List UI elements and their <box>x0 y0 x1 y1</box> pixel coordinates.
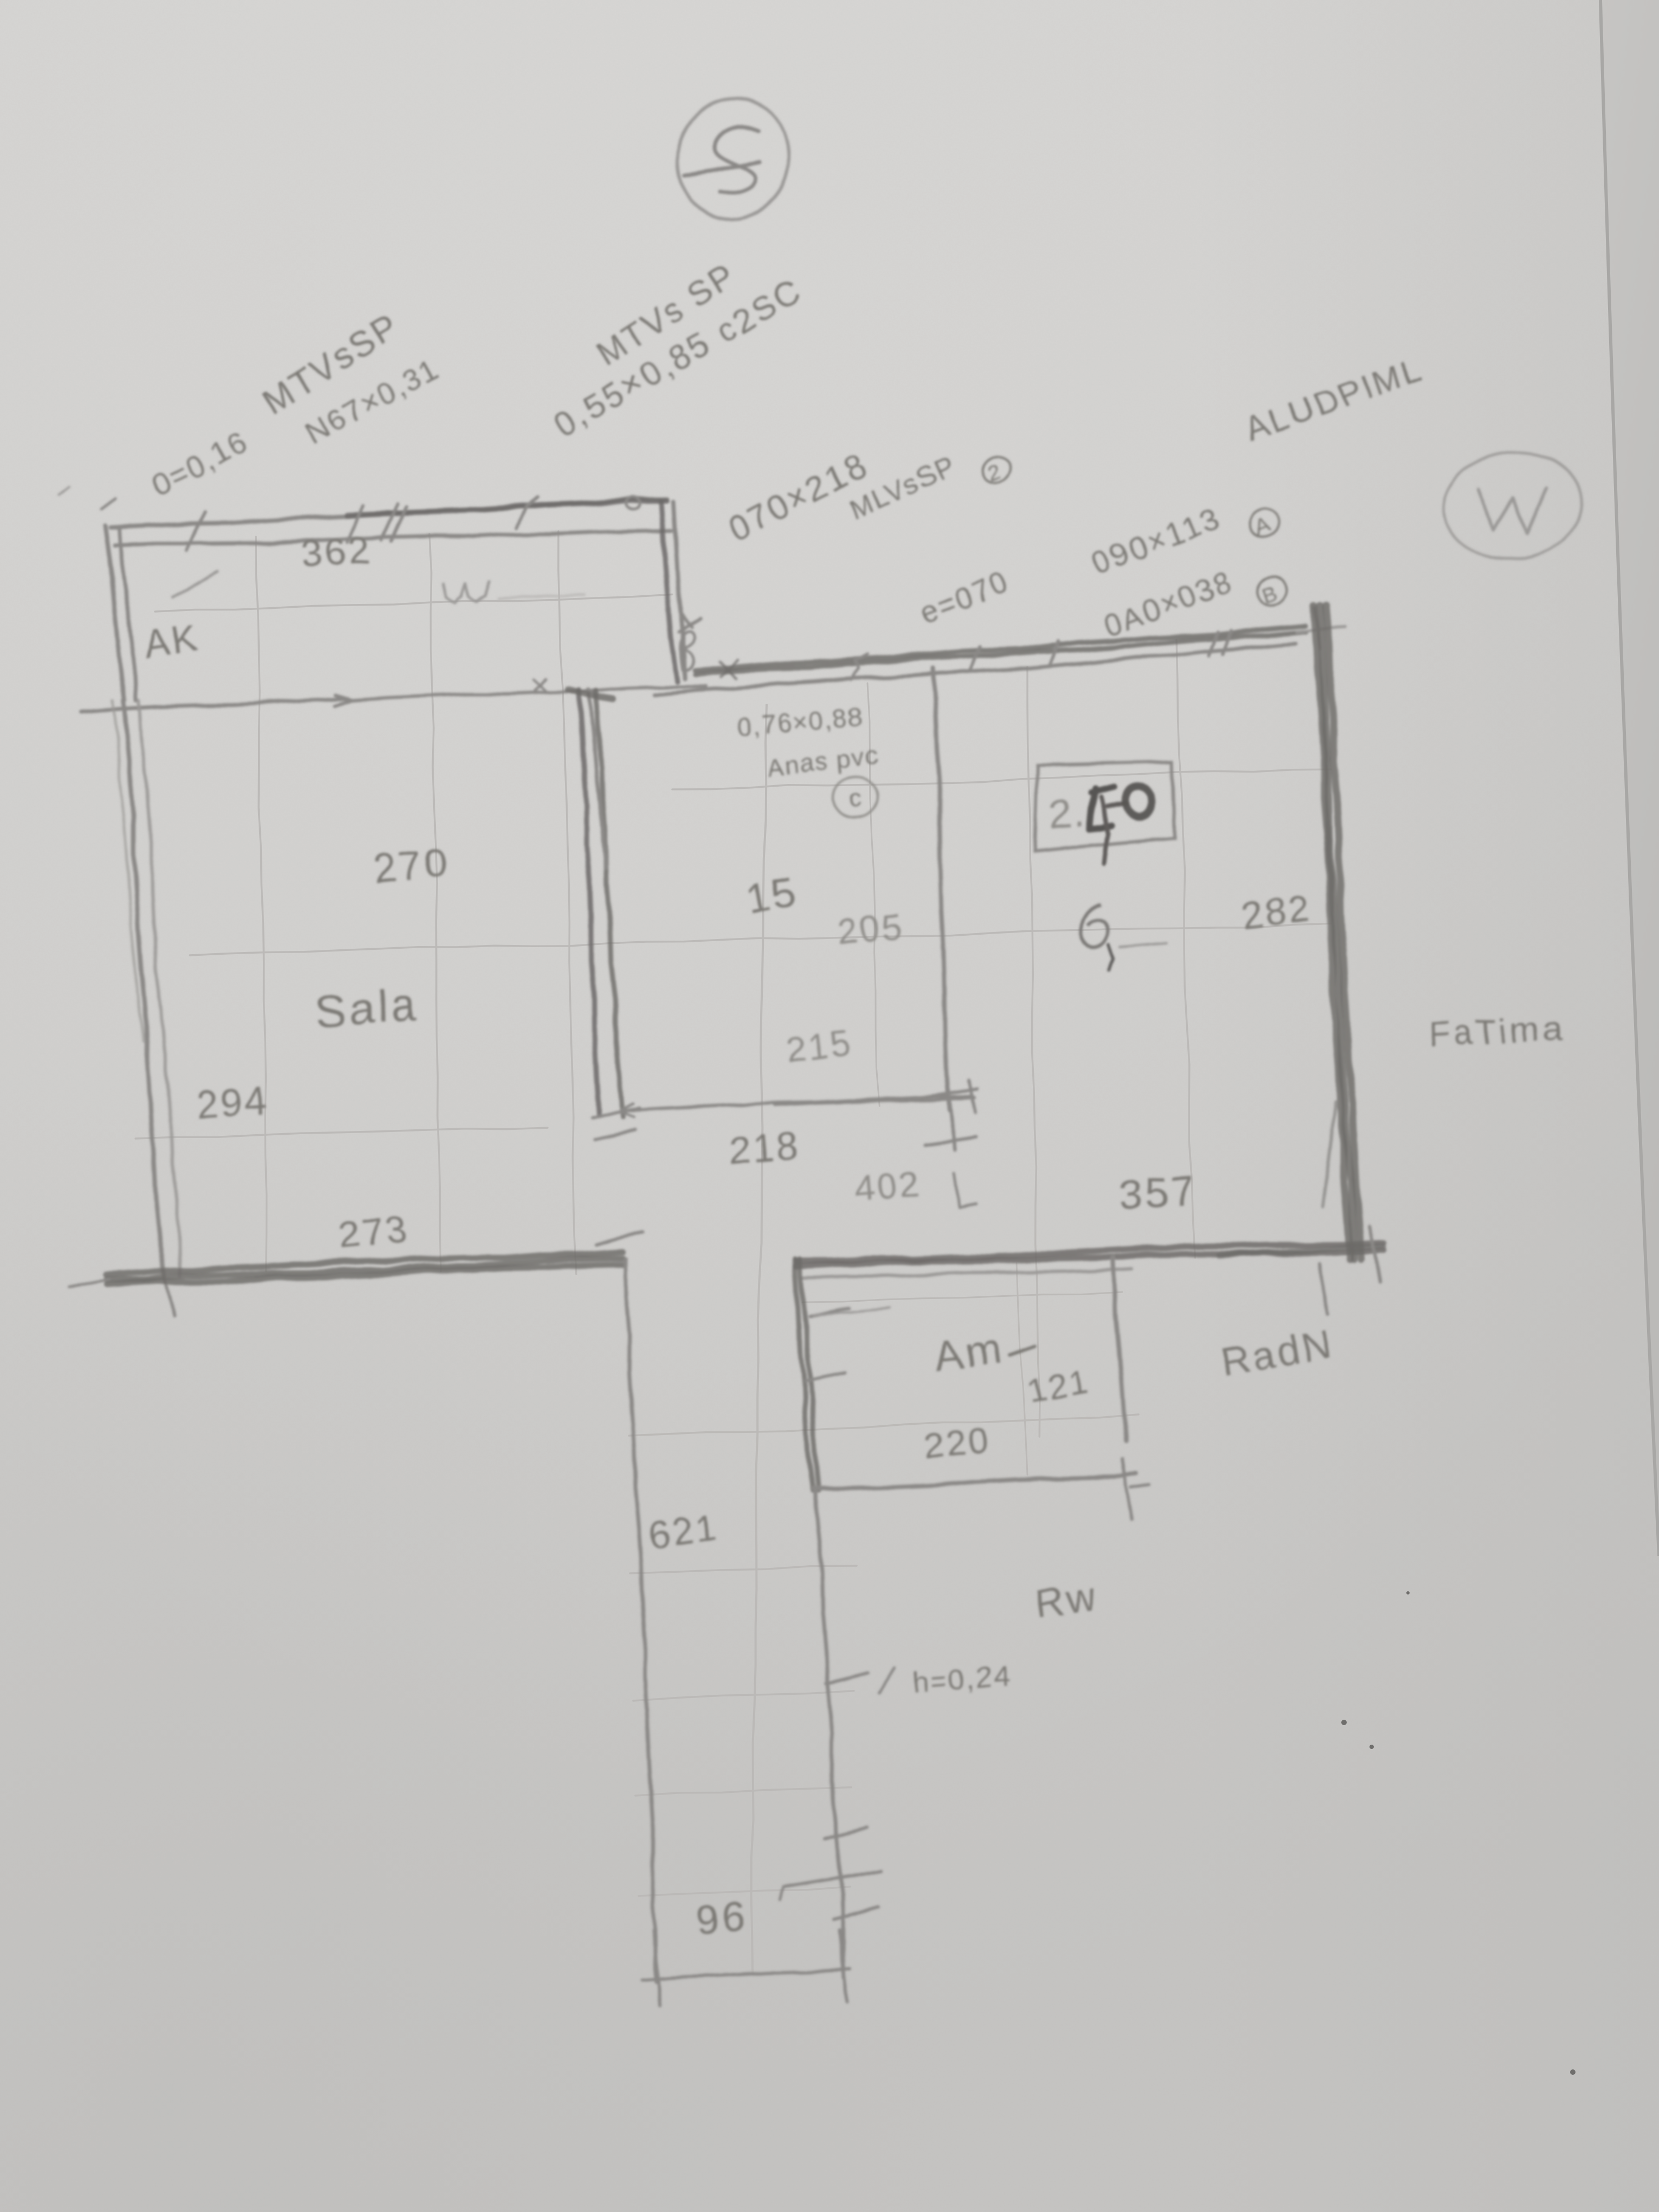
svg-text:Sala: Sala <box>313 978 422 1038</box>
svg-text:h=0,24: h=0,24 <box>911 1660 1013 1700</box>
svg-text:218: 218 <box>727 1123 802 1173</box>
svg-text:Rw: Rw <box>1032 1573 1100 1626</box>
svg-text:2.: 2. <box>1047 789 1087 838</box>
svg-text:205: 205 <box>836 906 905 951</box>
svg-text:Am: Am <box>931 1324 1006 1381</box>
svg-text:15: 15 <box>742 867 801 923</box>
svg-text:294: 294 <box>195 1079 269 1127</box>
svg-text:FaTima: FaTima <box>1428 1008 1566 1054</box>
svg-text:357: 357 <box>1117 1166 1199 1219</box>
svg-text:273: 273 <box>337 1207 410 1257</box>
svg-text:402: 402 <box>853 1163 923 1208</box>
svg-text:96: 96 <box>695 1893 750 1944</box>
svg-text:215: 215 <box>784 1022 854 1070</box>
svg-text:AK: AK <box>142 616 202 666</box>
svg-text:282: 282 <box>1239 887 1314 937</box>
svg-text:220: 220 <box>922 1419 992 1466</box>
svg-text:270: 270 <box>371 839 452 892</box>
svg-text:362: 362 <box>300 529 372 576</box>
